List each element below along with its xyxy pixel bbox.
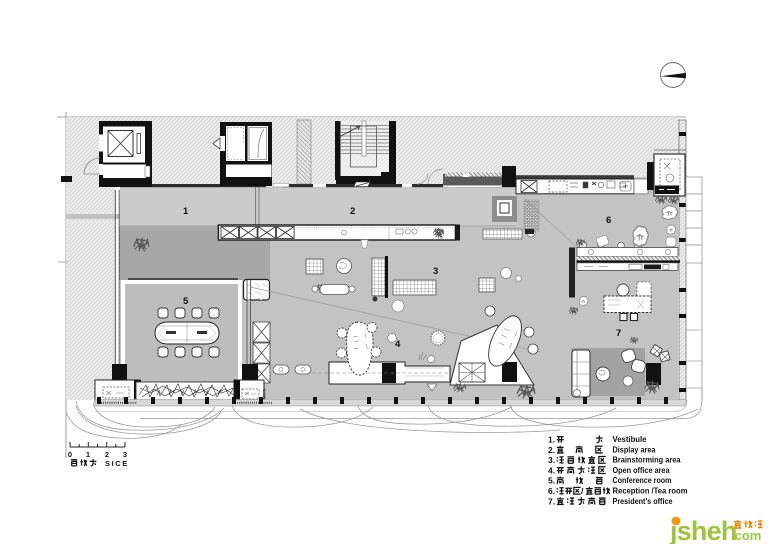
svg-text:4.: 4. [548,465,555,475]
svg-text:Open office area: Open office area [613,465,670,475]
svg-text:7: 7 [616,328,621,339]
svg-text:1: 1 [183,206,189,217]
svg-text:.com: .com [731,528,761,543]
svg-text:7.: 7. [548,496,555,506]
svg-text:2: 2 [105,450,109,459]
svg-text:3.: 3. [548,455,555,465]
svg-text:2.: 2. [548,445,555,455]
svg-text:SICE: SICE [105,459,129,468]
svg-text:Brainstorming area: Brainstorming area [613,455,681,465]
svg-text:Conference room: Conference room [613,475,672,485]
svg-text:0: 0 [68,450,72,459]
svg-text:1.: 1. [548,435,555,445]
svg-text:5.: 5. [548,476,555,486]
svg-text:Reception /Tea room: Reception /Tea room [613,486,688,496]
svg-text:5: 5 [183,296,189,307]
svg-text:1: 1 [86,450,90,459]
svg-text:6.: 6. [548,486,555,496]
svg-text:President's office: President's office [613,496,673,506]
svg-text:Display area: Display area [613,444,656,454]
svg-text:MOYB: MOYB [263,388,267,399]
svg-text:2: 2 [350,206,355,217]
svg-text:3: 3 [433,266,438,277]
svg-text:6: 6 [606,215,611,226]
svg-text:4: 4 [395,339,401,350]
svg-text:Vestibule: Vestibule [613,434,647,444]
svg-text:3: 3 [123,450,127,459]
